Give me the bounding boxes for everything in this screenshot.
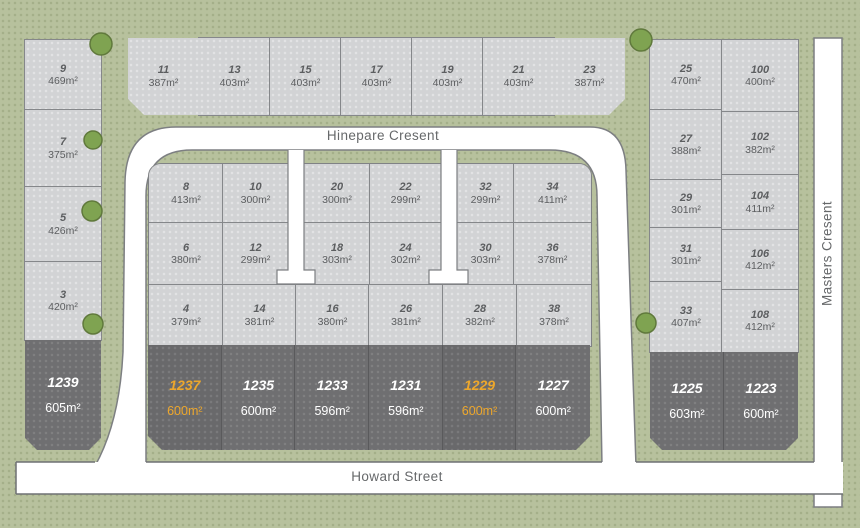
lot-1227[interactable]: 1227600m² — [516, 345, 590, 450]
lot-number: 1227 — [538, 377, 569, 393]
lot-11[interactable]: 11387m² — [128, 38, 199, 115]
lot-1239[interactable]: 1239605m² — [25, 340, 101, 450]
lot-number: 13 — [228, 64, 240, 77]
lot-number: 32 — [479, 181, 491, 194]
lot-number: 34 — [546, 181, 558, 194]
lot-24[interactable]: 24302m² — [370, 223, 441, 285]
lot-3[interactable]: 3420m² — [25, 262, 101, 340]
lot-area: 400m² — [745, 76, 775, 88]
lot-number: 21 — [512, 64, 524, 77]
lot-area: 420m² — [48, 301, 78, 313]
street-label-hinepare-cresent: Hinepare Cresent — [263, 128, 503, 143]
lot-26[interactable]: 26381m² — [369, 285, 443, 346]
lot-34[interactable]: 34411m² — [514, 164, 591, 223]
lot-area: 301m² — [671, 255, 701, 267]
lot-area: 403m² — [291, 77, 321, 89]
lot-area: 596m² — [314, 404, 349, 418]
lot-area: 381m² — [391, 316, 421, 328]
lot-17[interactable]: 17403m² — [341, 38, 412, 115]
lot-number: 20 — [331, 181, 343, 194]
lot-4[interactable]: 4379m² — [149, 285, 223, 346]
inner-row-1: 8413m²10300m²20300m²22299m²32299m²34411m… — [149, 164, 591, 223]
lot-number: 1233 — [317, 377, 348, 393]
west-dark-lot: 1239605m² — [25, 340, 101, 450]
lot-1229[interactable]: 1229600m² — [443, 345, 517, 450]
inner-row-2: 6380m²12299m²18303m²24302m²30303m²36378m… — [149, 223, 591, 285]
lot-number: 1231 — [390, 377, 421, 393]
lot-number: 1237 — [169, 377, 200, 393]
lot-area: 379m² — [171, 316, 201, 328]
lot-area: 426m² — [48, 225, 78, 237]
lot-29[interactable]: 29301m² — [650, 180, 722, 228]
lot-area: 303m² — [471, 254, 501, 266]
lot-23[interactable]: 23387m² — [554, 38, 625, 115]
lot-104[interactable]: 104411m² — [722, 175, 798, 230]
inner-dark-row: 1237600m²1235600m²1233596m²1231596m²1229… — [148, 345, 590, 450]
lot-number: 106 — [751, 248, 769, 261]
lot-10[interactable]: 10300m² — [223, 164, 288, 223]
lot-number: 9 — [60, 63, 66, 76]
lot-number: 17 — [370, 64, 382, 77]
lot-30[interactable]: 30303m² — [457, 223, 514, 285]
lot-14[interactable]: 14381m² — [223, 285, 296, 346]
road-masters-cresent — [814, 38, 842, 507]
lot-21[interactable]: 21403m² — [483, 38, 554, 115]
lot-area: 300m² — [322, 194, 352, 206]
lot-area: 412m² — [745, 260, 775, 272]
lot-1237[interactable]: 1237600m² — [148, 345, 222, 450]
lot-5[interactable]: 5426m² — [25, 187, 101, 262]
lot-number: 30 — [479, 242, 491, 255]
lot-1225[interactable]: 1225603m² — [650, 352, 724, 450]
west-lot-column: 9469m²7375m²5426m²3420m² — [25, 40, 101, 340]
lot-number: 14 — [253, 303, 265, 316]
lot-area: 375m² — [48, 149, 78, 161]
lot-number: 33 — [680, 305, 692, 318]
lot-area: 301m² — [671, 204, 701, 216]
lot-area: 412m² — [745, 321, 775, 333]
lot-9[interactable]: 9469m² — [25, 40, 101, 110]
lot-number: 31 — [680, 243, 692, 256]
inner-row-3: 4379m²14381m²16380m²26381m²28382m²38378m… — [149, 285, 591, 346]
inner-block: 8413m²10300m²20300m²22299m²32299m²34411m… — [148, 163, 592, 347]
lot-area: 411m² — [538, 194, 567, 206]
lot-100[interactable]: 100400m² — [722, 40, 798, 112]
lot-20[interactable]: 20300m² — [304, 164, 370, 223]
lot-area: 407m² — [671, 317, 701, 329]
lot-number: 25 — [680, 63, 692, 76]
lot-36[interactable]: 36378m² — [514, 223, 591, 285]
lot-area: 600m² — [462, 404, 497, 418]
lot-number: 11 — [158, 64, 169, 77]
lot-19[interactable]: 19403m² — [412, 38, 483, 115]
lot-number: 28 — [474, 303, 486, 316]
accessway — [441, 164, 457, 223]
accessway — [288, 164, 304, 223]
lot-number: 24 — [399, 242, 411, 255]
accessway — [441, 223, 457, 285]
lot-number: 22 — [399, 181, 411, 194]
lot-area: 596m² — [388, 404, 423, 418]
lot-area: 600m² — [535, 404, 570, 418]
lot-12[interactable]: 12299m² — [223, 223, 288, 285]
lot-8[interactable]: 8413m² — [149, 164, 223, 223]
lot-area: 600m² — [167, 404, 202, 418]
lot-area: 603m² — [669, 407, 704, 421]
lot-number: 1223 — [745, 380, 776, 396]
lot-106[interactable]: 106412m² — [722, 230, 798, 290]
lot-number: 36 — [546, 242, 558, 255]
lot-1231[interactable]: 1231596m² — [369, 345, 443, 450]
lot-number: 1239 — [47, 374, 78, 390]
lot-number: 8 — [183, 181, 189, 194]
lot-number: 1225 — [671, 380, 702, 396]
lot-1233[interactable]: 1233596m² — [295, 345, 369, 450]
lot-18[interactable]: 18303m² — [304, 223, 370, 285]
lot-38[interactable]: 38378m² — [517, 285, 591, 346]
lot-7[interactable]: 7375m² — [25, 110, 101, 187]
lot-number: 3 — [60, 289, 66, 302]
lot-area: 469m² — [48, 75, 78, 87]
lot-area: 387m² — [149, 77, 179, 89]
lot-area: 388m² — [671, 145, 701, 157]
lot-number: 16 — [326, 303, 338, 316]
north-lot-row: 11387m²13403m²15403m²17403m²19403m²21403… — [128, 38, 625, 115]
lot-area: 303m² — [322, 254, 352, 266]
lot-13[interactable]: 13403m² — [199, 38, 270, 115]
lot-number: 108 — [751, 309, 769, 322]
lot-area: 600m² — [743, 407, 778, 421]
lot-area: 299m² — [241, 254, 271, 266]
lot-number: 104 — [751, 190, 769, 203]
east-dark-lots: 1225603m²1223600m² — [650, 352, 798, 450]
lot-number: 102 — [751, 131, 769, 144]
lot-area: 411m² — [746, 203, 775, 215]
lot-33[interactable]: 33407m² — [650, 282, 722, 352]
lot-number: 38 — [548, 303, 560, 316]
road-howard-street — [16, 462, 843, 494]
lot-number: 12 — [249, 242, 261, 255]
lot-1223[interactable]: 1223600m² — [724, 352, 798, 450]
lot-area: 403m² — [504, 77, 534, 89]
road-howard-street-borders — [16, 462, 843, 494]
lot-16[interactable]: 16380m² — [296, 285, 369, 346]
lot-number: 5 — [60, 212, 66, 225]
lot-number: 27 — [680, 133, 692, 146]
lot-32[interactable]: 32299m² — [457, 164, 514, 223]
site-plan: 9469m²7375m²5426m²3420m² 1239605m² 11387… — [0, 0, 860, 528]
lot-15[interactable]: 15403m² — [270, 38, 341, 115]
lot-27[interactable]: 27388m² — [650, 110, 722, 180]
lot-number: 7 — [60, 136, 66, 149]
lot-number: 100 — [751, 64, 769, 77]
lot-area: 381m² — [245, 316, 275, 328]
lot-area: 299m² — [391, 194, 421, 206]
east-lot-column-2: 100400m²102382m²104411m²106412m²108412m² — [722, 40, 798, 352]
lot-area: 300m² — [241, 194, 271, 206]
lot-area: 470m² — [671, 75, 701, 87]
lot-area: 378m² — [539, 316, 569, 328]
lot-31[interactable]: 31301m² — [650, 228, 722, 282]
lot-area: 380m² — [318, 316, 348, 328]
lot-number: 4 — [183, 303, 189, 316]
east-lot-column-1: 25470m²27388m²29301m²31301m²33407m² — [650, 40, 722, 352]
lot-area: 378m² — [538, 254, 568, 266]
tree-icon — [630, 29, 652, 51]
street-label-masters-cresent: Masters Cresent — [812, 148, 842, 358]
lot-108[interactable]: 108412m² — [722, 290, 798, 352]
lot-number: 1229 — [464, 377, 495, 393]
lot-25[interactable]: 25470m² — [650, 40, 722, 110]
lot-6[interactable]: 6380m² — [149, 223, 223, 285]
lot-area: 403m² — [433, 77, 463, 89]
lot-area: 605m² — [45, 401, 80, 415]
lot-number: 15 — [299, 64, 311, 77]
lot-22[interactable]: 22299m² — [370, 164, 441, 223]
lot-number: 26 — [400, 303, 412, 316]
street-label-howard-street: Howard Street — [277, 469, 517, 484]
lot-area: 302m² — [391, 254, 421, 266]
lot-28[interactable]: 28382m² — [443, 285, 517, 346]
accessway — [288, 223, 304, 285]
lot-area: 382m² — [465, 316, 495, 328]
lot-number: 10 — [249, 181, 261, 194]
lot-area: 600m² — [241, 404, 276, 418]
lot-area: 299m² — [471, 194, 501, 206]
lot-area: 413m² — [171, 194, 201, 206]
lot-number: 18 — [331, 242, 343, 255]
lot-102[interactable]: 102382m² — [722, 112, 798, 175]
lot-area: 380m² — [171, 254, 201, 266]
lot-number: 23 — [583, 64, 595, 77]
lot-number: 19 — [441, 64, 453, 77]
lot-number: 6 — [183, 242, 189, 255]
lot-number: 29 — [680, 192, 692, 205]
lot-number: 1235 — [243, 377, 274, 393]
lot-1235[interactable]: 1235600m² — [222, 345, 296, 450]
lot-area: 403m² — [220, 77, 250, 89]
lot-area: 387m² — [575, 77, 605, 89]
lot-area: 403m² — [362, 77, 392, 89]
lot-area: 382m² — [745, 144, 775, 156]
